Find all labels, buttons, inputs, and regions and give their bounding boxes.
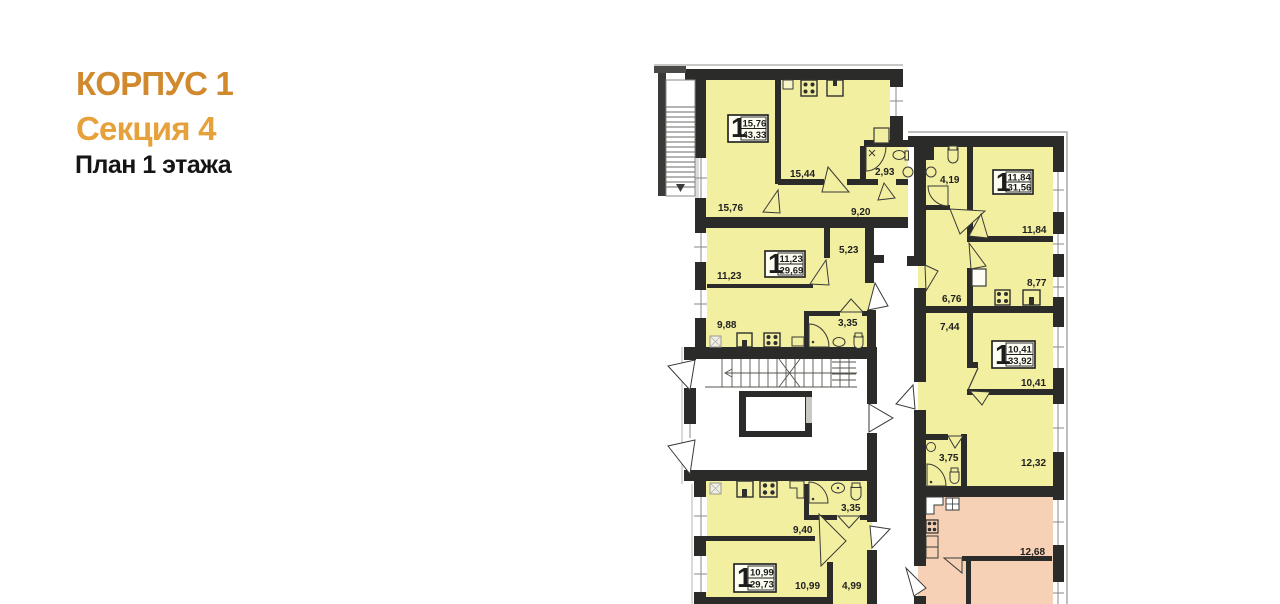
svg-text:5,23: 5,23 (839, 245, 859, 256)
svg-text:15,44: 15,44 (790, 169, 815, 180)
svg-text:11,84: 11,84 (1022, 225, 1047, 236)
svg-text:4,99: 4,99 (842, 581, 862, 592)
svg-text:10,99: 10,99 (750, 568, 774, 579)
svg-text:8,77: 8,77 (1027, 278, 1047, 289)
svg-text:4,19: 4,19 (940, 175, 960, 186)
svg-text:12,68: 12,68 (1020, 547, 1045, 558)
svg-text:10,41: 10,41 (1008, 345, 1032, 356)
svg-text:6,76: 6,76 (942, 294, 962, 305)
svg-text:15,76: 15,76 (718, 203, 743, 214)
svg-text:33,92: 33,92 (1008, 356, 1032, 367)
svg-text:3,35: 3,35 (838, 318, 858, 329)
svg-text:7,44: 7,44 (940, 322, 960, 333)
svg-text:9,40: 9,40 (793, 525, 813, 536)
svg-text:2,93: 2,93 (875, 167, 895, 178)
svg-text:11,23: 11,23 (780, 254, 803, 265)
svg-text:29,73: 29,73 (750, 580, 774, 591)
svg-text:3,35: 3,35 (841, 503, 861, 514)
svg-text:12,32: 12,32 (1021, 458, 1046, 469)
svg-text:29,69: 29,69 (780, 266, 804, 277)
svg-text:9,20: 9,20 (851, 207, 871, 218)
svg-text:15,76: 15,76 (743, 119, 767, 130)
svg-text:3,75: 3,75 (939, 453, 959, 464)
svg-text:11,23: 11,23 (717, 271, 742, 282)
svg-text:9,88: 9,88 (717, 320, 737, 331)
svg-text:31,56: 31,56 (1008, 183, 1032, 194)
svg-text:10,41: 10,41 (1021, 378, 1046, 389)
svg-text:43,33: 43,33 (743, 130, 767, 141)
svg-text:10,99: 10,99 (795, 581, 820, 592)
